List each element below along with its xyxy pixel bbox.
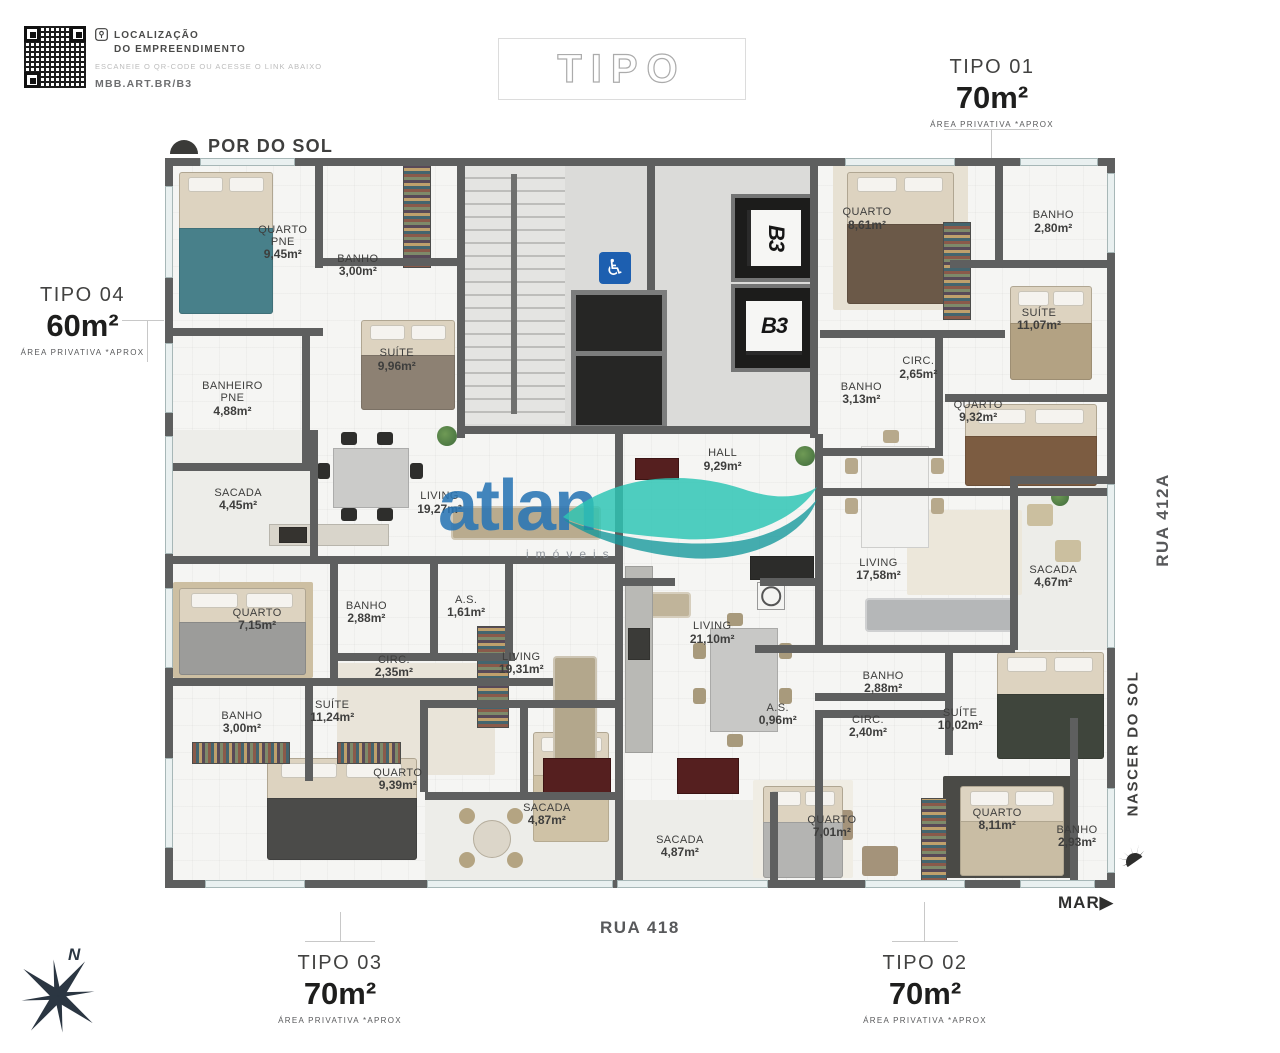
wall [310, 430, 318, 564]
qr-subtitle: ESCANEIE O QR-CODE OU ACESSE O LINK ABAI… [95, 62, 322, 71]
closet [192, 742, 290, 764]
unit-name: TIPO 03 [250, 952, 430, 975]
elevator: B3 [731, 194, 817, 282]
wall [820, 330, 1005, 338]
wall [820, 448, 940, 456]
room-label: BANHO2,88m² [346, 600, 387, 626]
wall [995, 158, 1003, 262]
unit-note: ÁREA PRIVATIVA *APROX [0, 348, 165, 357]
planter [543, 758, 611, 794]
chair [883, 430, 899, 443]
room-label: LIVING17,58m² [856, 557, 901, 583]
room-area: 9,45m² [258, 248, 307, 261]
unit-name: TIPO 02 [835, 952, 1015, 975]
wall [457, 426, 818, 434]
wall [430, 560, 438, 653]
compass-north-letter: N [68, 945, 81, 964]
room-area: 0,96m² [759, 714, 797, 727]
bed [1010, 286, 1092, 380]
room-label: SUÍTE10,02m² [938, 707, 983, 733]
planter [677, 758, 739, 794]
wall [810, 158, 818, 438]
room-area: 1,61m² [447, 606, 485, 619]
chair [727, 734, 743, 747]
unit-note: ÁREA PRIVATIVA *APROX [902, 120, 1082, 129]
plant [437, 426, 457, 446]
room-area: 11,24m² [310, 712, 354, 725]
room-name: QUARTO PNE [258, 224, 307, 249]
arrow-right-icon: ▶ [1100, 893, 1114, 912]
closet [921, 798, 947, 882]
room-area: 4,67m² [1029, 576, 1077, 589]
wall [615, 434, 623, 888]
compass-icon: N [12, 938, 108, 1038]
unit-name: TIPO 04 [0, 284, 165, 307]
room-area: 2,80m² [1033, 222, 1074, 235]
window [165, 436, 173, 554]
sunrise-icon [1118, 845, 1152, 879]
washing-machine [757, 582, 785, 610]
lounge-chair [862, 846, 898, 876]
closet [403, 160, 431, 268]
stair-rail [511, 174, 517, 414]
window [427, 880, 613, 888]
room-area: 9,96m² [378, 360, 416, 373]
chair [845, 498, 858, 514]
wall [1010, 476, 1107, 484]
leader-line [892, 941, 958, 942]
chair [377, 508, 393, 521]
room-label: QUARTO PNE9,45m² [258, 224, 307, 262]
kitchen-cabinet [750, 556, 814, 580]
qr-title-line2: DO EMPREENDIMENTO [114, 44, 246, 55]
chair [377, 432, 393, 445]
room-label: QUARTO8,11m² [973, 807, 1022, 833]
room-label: CIRC.2,35m² [375, 654, 413, 680]
unit-note: ÁREA PRIVATIVA *APROX [835, 1016, 1015, 1025]
closet [943, 222, 971, 320]
window [165, 343, 173, 413]
room-label: QUARTO7,01m² [807, 814, 856, 840]
leader-line [147, 320, 148, 362]
room-area: 19,27m² [417, 503, 462, 516]
room-name: BANHEIRO PNE [202, 380, 263, 405]
sunrise-label: NASCER DO SOL [1125, 659, 1142, 829]
chair [693, 688, 706, 704]
leader-line [305, 941, 375, 942]
room-label: SUÍTE11,24m² [310, 699, 354, 725]
wheelchair-icon: ♿ [599, 252, 631, 284]
room-label: QUARTO8,61m² [843, 206, 892, 232]
bed [997, 652, 1104, 759]
window [1107, 788, 1115, 873]
wall [505, 560, 513, 653]
street-right-label: RUA 412A [1153, 465, 1173, 575]
unit-label-tipo01: TIPO 01 70m² ÁREA PRIVATIVA *APROX [902, 56, 1082, 129]
unit-area: 60m² [0, 308, 165, 344]
room-label: SUÍTE9,96m² [378, 347, 416, 373]
window [865, 880, 965, 888]
room-label: BANHO2,93m² [1056, 824, 1097, 850]
window [1107, 484, 1115, 648]
sea-label: MAR [1058, 893, 1100, 912]
room-label: QUARTO9,39m² [373, 767, 422, 793]
window [1107, 173, 1115, 253]
wall [815, 434, 823, 649]
room-area: 19,31m² [499, 663, 544, 676]
cooktop [279, 527, 307, 543]
sea-direction: MAR▶ [1058, 893, 1114, 913]
plant [795, 446, 815, 466]
elevator: B3 [731, 284, 817, 372]
room-area: 3,13m² [841, 393, 882, 406]
leader-line [991, 129, 992, 158]
unit-area: 70m² [835, 976, 1015, 1012]
leader-line [924, 902, 925, 942]
unit-area: 70m² [250, 976, 430, 1012]
unit-name: TIPO 01 [902, 56, 1082, 79]
room-label: QUARTO9,32m² [954, 399, 1003, 425]
window [200, 158, 295, 166]
wall [647, 166, 655, 290]
leader-line [340, 912, 341, 942]
plan-title: TIPO [557, 47, 686, 92]
shaft-divider [571, 351, 667, 356]
wall [165, 463, 310, 471]
chair [845, 458, 858, 474]
room-label: A.S.1,61m² [447, 594, 485, 620]
room-area: 2,88m² [346, 612, 387, 625]
window [617, 880, 768, 888]
wall [755, 645, 1015, 653]
wall [945, 645, 953, 755]
room-label: HALL9,29m² [704, 447, 742, 473]
unit-label-tipo03: TIPO 03 70m² ÁREA PRIVATIVA *APROX [250, 952, 430, 1025]
room-area: 4,45m² [214, 499, 262, 512]
dining-table [333, 448, 409, 508]
patio-chair [1055, 540, 1081, 562]
sofa [865, 598, 1015, 632]
unit-note: ÁREA PRIVATIVA *APROX [250, 1016, 430, 1025]
wall [425, 792, 615, 800]
window [165, 588, 173, 668]
closet [337, 742, 401, 764]
unit-label-tipo02: TIPO 02 70m² ÁREA PRIVATIVA *APROX [835, 952, 1015, 1025]
wall [165, 556, 620, 564]
sunset-icon [170, 140, 198, 154]
chair [410, 463, 423, 479]
room-area: 4,88m² [202, 404, 263, 417]
window [165, 758, 173, 848]
room-area: 17,58m² [856, 569, 901, 582]
chair [931, 458, 944, 474]
street-bottom-label: RUA 418 [600, 918, 680, 938]
room-area: 2,88m² [863, 682, 904, 695]
sunset-label: POR DO SOL [208, 136, 333, 157]
patio-chair [1027, 504, 1053, 526]
window [205, 880, 305, 888]
patio-chair [507, 852, 523, 868]
room-area: 7,01m² [807, 826, 856, 839]
room-area: 10,02m² [938, 720, 983, 733]
room-label: A.S.0,96m² [759, 702, 797, 728]
map-pin-icon [95, 28, 108, 41]
wall [302, 328, 310, 468]
room-label: BANHEIRO PNE4,88m² [202, 380, 263, 418]
room-label: BANHO3,13m² [841, 381, 882, 407]
wall [820, 488, 1115, 496]
wall [760, 578, 818, 586]
chair [341, 432, 357, 445]
room-area: 2,65m² [899, 368, 937, 381]
room-area: 2,40m² [849, 726, 887, 739]
elevator-brand: B3 [747, 210, 801, 266]
room-area: 2,35m² [375, 666, 413, 679]
wall [815, 718, 823, 888]
room-label: LIVING19,27m² [417, 490, 462, 516]
wall [330, 653, 515, 661]
qr-link[interactable]: MBB.ART.BR/B3 [95, 78, 322, 90]
room-label: BANHO2,80m² [1033, 209, 1074, 235]
room-label: QUARTO7,15m² [233, 607, 282, 633]
wall [950, 260, 1107, 268]
room-area: 9,29m² [704, 460, 742, 473]
patio-chair [507, 808, 523, 824]
room-area: 11,07m² [1017, 319, 1061, 332]
chair [317, 463, 330, 479]
wall [1010, 480, 1018, 650]
patio-chair [459, 852, 475, 868]
room-label: SUÍTE11,07m² [1017, 307, 1061, 333]
qr-title-line1: LOCALIZAÇÃO [114, 30, 199, 41]
room-area: 8,61m² [843, 219, 892, 232]
wall [520, 700, 528, 792]
window [1020, 158, 1098, 166]
wall [165, 678, 553, 686]
room-area: 9,39m² [373, 779, 422, 792]
qr-code [24, 26, 86, 88]
room-label: CIRC.2,40m² [849, 714, 887, 740]
room-area: 9,32m² [954, 411, 1003, 424]
window [1020, 880, 1095, 888]
floorplan-page: { "qr_block": { "title_line1": "LOCALIZA… [0, 0, 1280, 1053]
window [165, 186, 173, 278]
floor-plan: B3 B3 ♿ [165, 158, 1115, 888]
patio-chair [459, 808, 475, 824]
bed [847, 172, 954, 304]
chair [931, 498, 944, 514]
room-label: CIRC.2,65m² [899, 355, 937, 381]
room-label: BANHO3,00m² [221, 710, 262, 736]
room-label: LIVING19,31m² [499, 651, 544, 677]
elevator-shaft [571, 290, 667, 430]
room-label: SACADA4,67m² [1029, 564, 1077, 590]
wall [770, 792, 778, 888]
room-area: 3,00m² [221, 722, 262, 735]
sofa [451, 506, 601, 540]
wall [1070, 718, 1078, 880]
room-label: LIVING21,10m² [690, 620, 735, 646]
wall [330, 560, 338, 680]
room-label: SACADA4,45m² [214, 487, 262, 513]
room-label: BANHO2,88m² [863, 670, 904, 696]
room-label: SACADA4,87m² [656, 834, 704, 860]
dining-table [861, 446, 929, 548]
plan-title-box: TIPO [498, 38, 746, 100]
room-area: 4,87m² [523, 814, 571, 827]
wall [315, 158, 323, 268]
cooktop [628, 628, 650, 660]
window [845, 158, 955, 166]
wall [457, 158, 465, 438]
room-label: BANHO3,00m² [337, 253, 378, 279]
wall [165, 328, 323, 336]
room-area: 21,10m² [690, 633, 735, 646]
wall [420, 700, 615, 708]
wall [165, 158, 1115, 166]
qr-title: LOCALIZAÇÃO DO EMPREENDIMENTO [95, 28, 322, 56]
room-area: 7,15m² [233, 620, 282, 633]
unit-area: 70m² [902, 80, 1082, 116]
qr-text-block: LOCALIZAÇÃO DO EMPREENDIMENTO ESCANEIE O… [95, 28, 322, 90]
room-label: SACADA4,87m² [523, 802, 571, 828]
patio-table [473, 820, 511, 858]
doormat [635, 458, 679, 480]
room-area: 4,87m² [656, 847, 704, 860]
chair [341, 508, 357, 521]
room-area: 8,11m² [973, 820, 1022, 833]
wall [615, 578, 675, 586]
elevator-brand: B3 [746, 301, 802, 355]
leader-line [122, 320, 164, 321]
room-area: 3,00m² [337, 265, 378, 278]
room-area: 2,93m² [1056, 836, 1097, 849]
